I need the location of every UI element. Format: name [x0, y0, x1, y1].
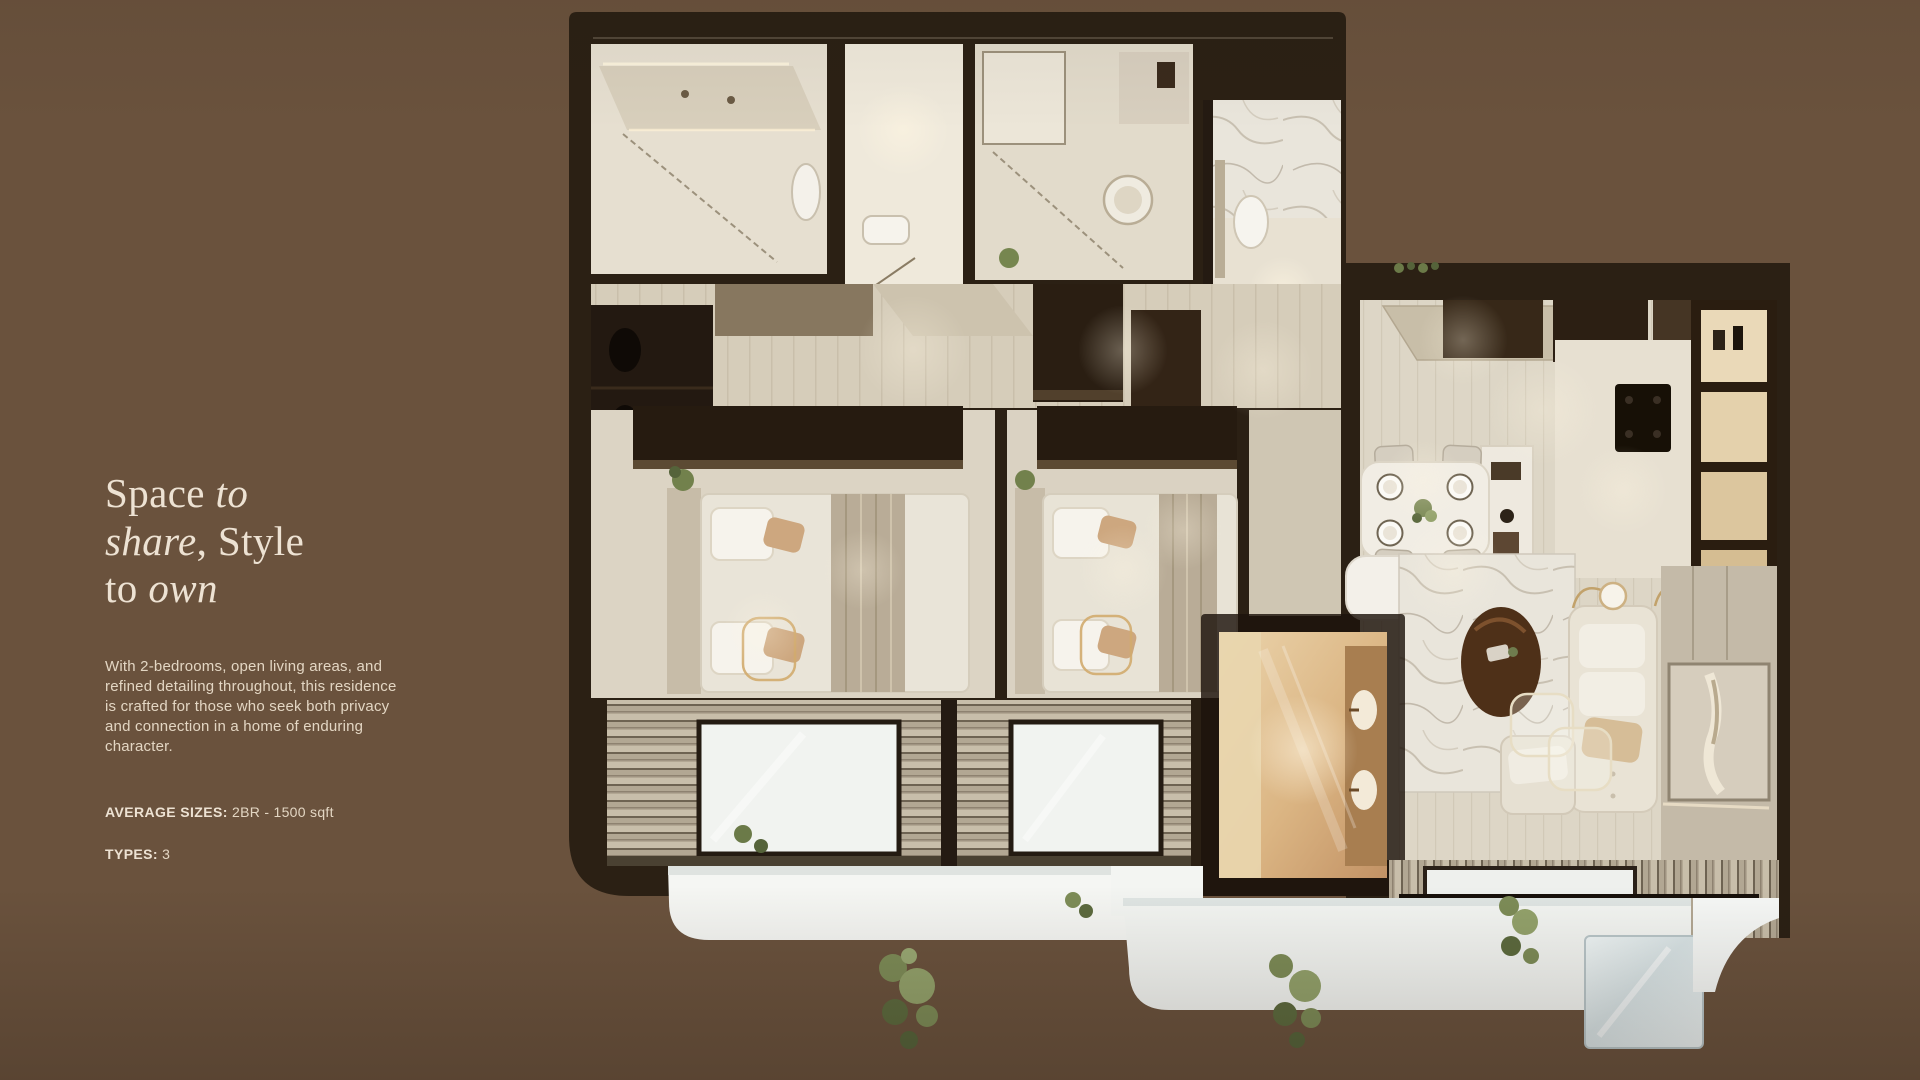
title-line-2: share, Style	[105, 518, 304, 564]
plant-icon	[1015, 470, 1035, 490]
washbasin-icon	[863, 216, 909, 244]
spec-types: TYPES: 3	[105, 845, 435, 863]
artwork-frame	[1669, 664, 1769, 800]
floor-plan-svg	[563, 10, 1793, 1080]
spec-average-sizes: AVERAGE SIZES: 2BR - 1500 sqft	[105, 803, 435, 821]
side-table-ring	[1549, 728, 1611, 790]
wardrobe-icon	[1037, 406, 1237, 468]
shower-icon	[983, 52, 1065, 144]
floor-plan-render	[563, 10, 1793, 1080]
plant-cluster	[879, 948, 938, 1049]
plant-icon	[999, 248, 1019, 268]
pillow-icon	[711, 508, 773, 560]
toilet-icon	[1234, 196, 1268, 248]
bathroom-2	[975, 44, 1193, 280]
balcony-bedroom-2	[957, 700, 1191, 866]
powder-room	[845, 44, 963, 296]
wardrobe-icon	[633, 406, 963, 468]
cooktop-icon	[1615, 384, 1671, 452]
page-title: Space toshare, Styleto own	[105, 470, 435, 613]
description-paragraph: With 2-bedrooms, open living areas, and …	[105, 657, 405, 757]
balcony-bedroom-1	[607, 700, 959, 866]
toilet-icon	[792, 164, 820, 220]
ensuite-bathroom	[1201, 614, 1405, 896]
floor-lamp-icon	[1600, 583, 1626, 609]
title-line-3: to own	[105, 565, 218, 611]
spec-average-sizes-label: AVERAGE SIZES:	[105, 804, 228, 820]
bathroom-1	[591, 44, 827, 274]
intro-text-column: Space toshare, Styleto own With 2-bedroo…	[105, 470, 435, 887]
spec-types-value: 3	[162, 846, 170, 862]
title-line-1: Space to	[105, 470, 248, 516]
spec-average-sizes-value: 2BR - 1500 sqft	[232, 804, 334, 820]
spec-types-label: TYPES:	[105, 846, 158, 862]
hallway	[1249, 410, 1341, 616]
